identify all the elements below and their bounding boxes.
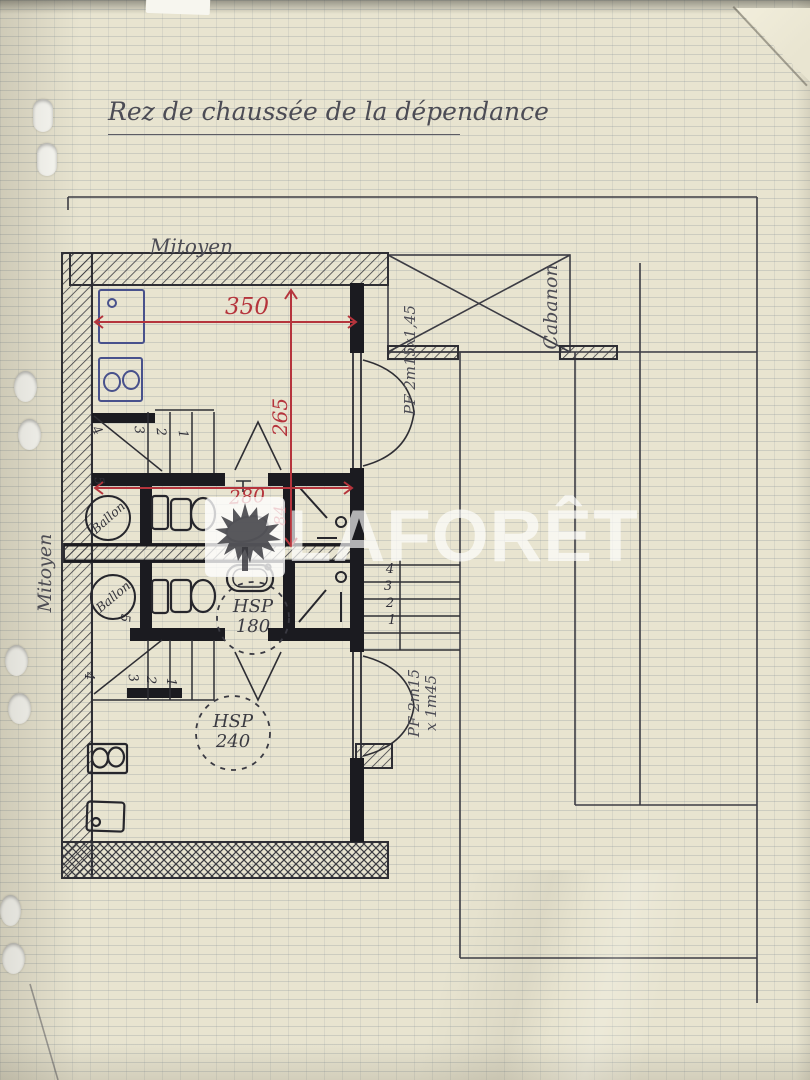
stair-step-number: 2 <box>143 673 157 687</box>
tree-icon <box>205 497 285 577</box>
stair-step-number: 2 <box>152 424 167 439</box>
stair-step-number: 3 <box>130 422 145 437</box>
stair-step-number: 5 <box>116 610 131 625</box>
label-hsp-240: HSP 240 <box>193 712 273 752</box>
label-hsp-180-line2: 180 <box>213 617 293 637</box>
dim-265: 265 <box>268 392 292 442</box>
fixtures-kitchen <box>99 290 144 401</box>
punch-hole <box>37 143 57 176</box>
label-hsp-180-line1: HSP <box>213 597 293 617</box>
label-hsp-240-line2: 240 <box>193 732 273 752</box>
page-title: Rez de chaussée de la dépendance <box>108 97 460 135</box>
label-pf-lower-line2: x 1m45 <box>423 643 440 763</box>
stair-step-number: 2 <box>383 597 397 611</box>
punch-hole <box>33 99 53 132</box>
label-pf-upper: PF 2m15x1,45 <box>401 295 419 425</box>
stair-step-number: 4 <box>81 669 95 683</box>
punch-hole <box>18 419 41 450</box>
punch-hole <box>14 371 37 402</box>
punch-hole <box>0 895 21 926</box>
label-pf-lower-line1: PF 2m15 <box>406 643 423 763</box>
stair-step-number: 5 <box>90 473 106 489</box>
stair-step-number: 3 <box>381 580 395 594</box>
watermark-logo <box>205 497 285 577</box>
watermark-text: LAFORÊT <box>287 497 639 577</box>
label-mitoyen-top: Mitoyen <box>150 234 233 258</box>
stair-step-number: 1 <box>174 426 189 441</box>
stair-step-number: 1 <box>163 675 177 689</box>
label-mitoyen-left: Mitoyen <box>34 523 56 623</box>
label-hsp-180: HSP 180 <box>213 597 293 637</box>
label-cabanon: Cabanon <box>540 257 562 357</box>
punch-hole <box>2 943 25 974</box>
stair-step-number: 3 <box>124 670 140 686</box>
punch-hole <box>5 645 28 676</box>
stair-step-number: 1 <box>385 614 399 628</box>
dim-350: 350 <box>217 294 277 320</box>
label-pf-lower: PF 2m15 x 1m45 <box>406 643 440 763</box>
photographed-floor-plan: Rez de chaussée de la dépendance Mitoyen… <box>0 0 810 1080</box>
punch-hole <box>8 693 31 724</box>
label-hsp-240-line1: HSP <box>193 712 273 732</box>
